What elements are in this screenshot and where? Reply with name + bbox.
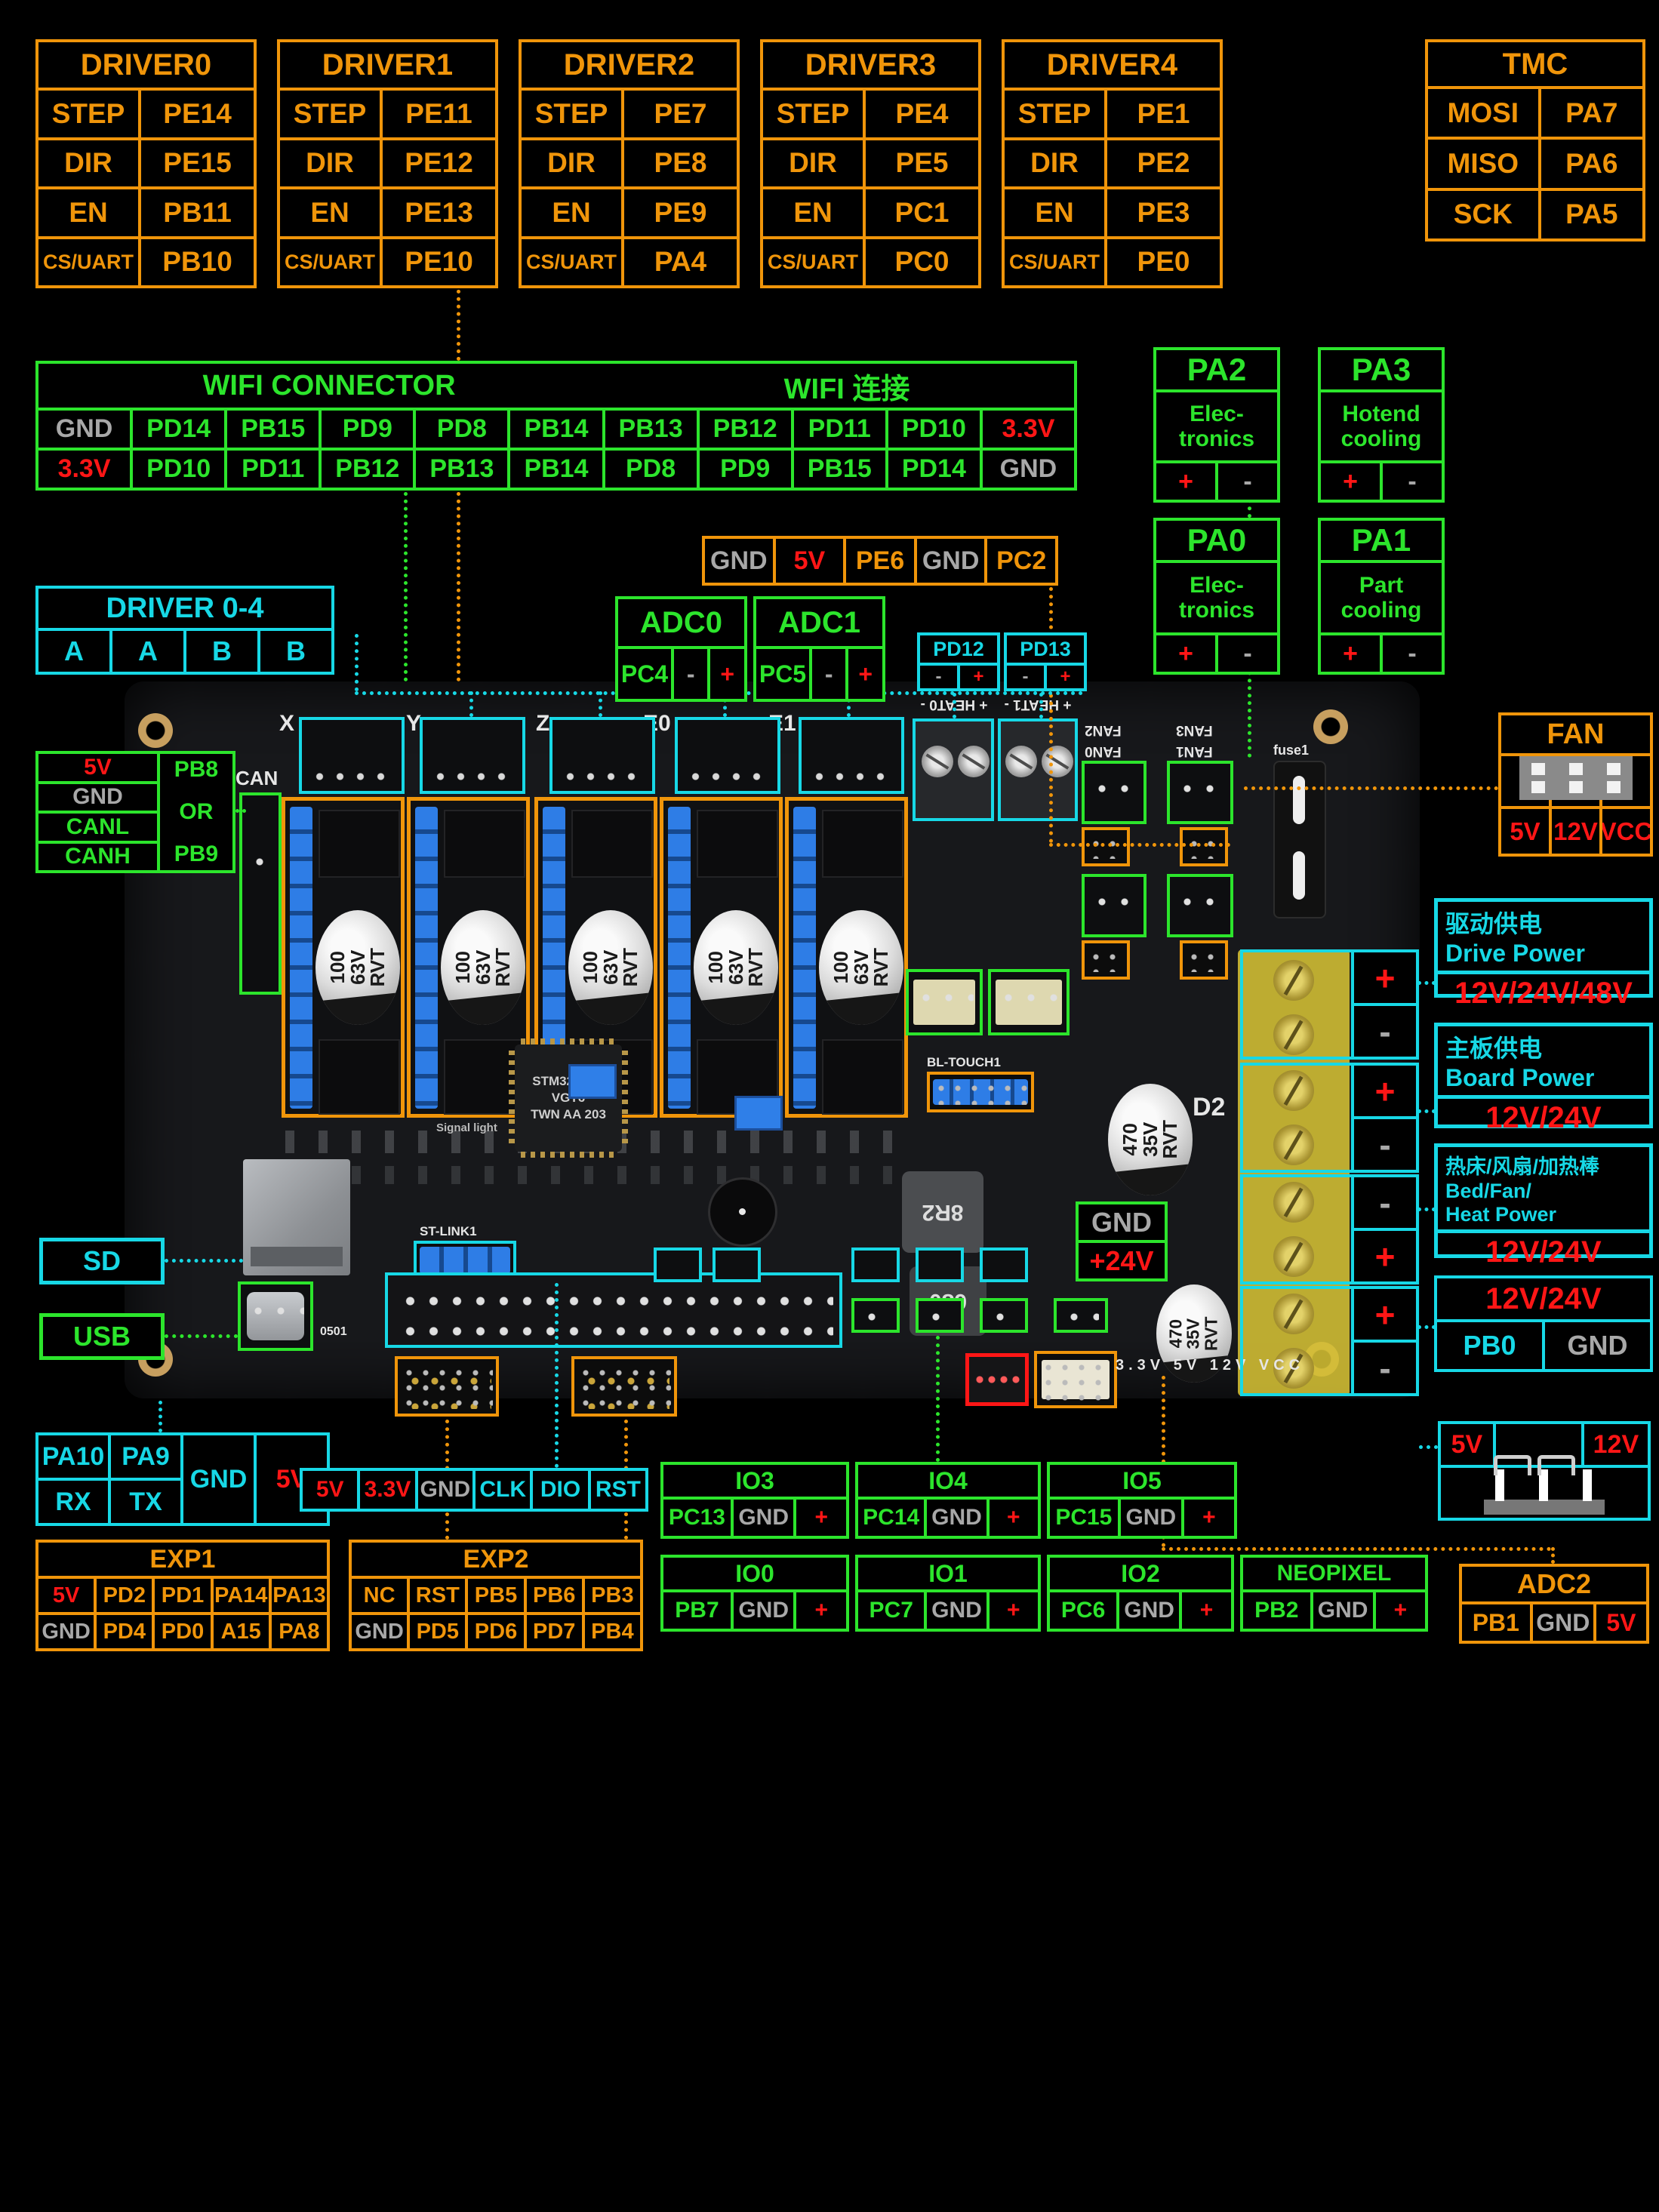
uart-pa10: PA10 [38,1435,108,1478]
wifi-power-connector [965,1353,1029,1406]
driver0-pin: PE15 [141,140,254,187]
uart-tx: TX [111,1481,180,1523]
jumper-header [1082,940,1130,980]
swd-pin: 5V [303,1471,357,1509]
heat1-silk: + HEAT1 - [998,696,1078,712]
pa2-minus: - [1218,463,1277,500]
driver2-table: DRIVER2 STEPPE7DIRPE8ENPE9CS/UARTPA4 [519,39,740,288]
driver3-pin: CS/UART [763,239,863,286]
io3-pin: + [796,1500,846,1536]
adc0-pin: - [674,649,708,699]
driver0-pin: PB11 [141,189,254,236]
adc-jst-connector [988,969,1070,1035]
wifi-pin: PD10 [888,411,980,448]
driver2-pin: PE8 [624,140,737,187]
exp1-pin: PD4 [97,1615,152,1648]
pd12-plus: + [960,666,997,688]
io2-title: IO2 [1050,1558,1231,1589]
adc1-pin: - [812,649,846,699]
exp1-pin: A15 [214,1615,269,1648]
capacitor: 10063VRVT [694,910,778,1025]
wifi-title: WIFI CONNECTOR WIFI 连接 [38,364,1074,408]
driver3-pin: DIR [763,140,863,187]
driver1-pin: PE13 [383,189,495,236]
drive-power-voltage: 12V/24V/48V [1438,971,1649,1013]
uart-pa9: PA9 [111,1435,180,1478]
driver1-pin: EN [280,189,380,236]
pa3-title: PA3 [1321,350,1442,389]
driver4-table: DRIVER4 STEPPE1DIRPE2ENPE3CS/UARTPE0 [1002,39,1223,288]
fan3-silk: FAN3 [1176,721,1213,738]
exp1-title: EXP1 [38,1543,327,1576]
driver2-title: DRIVER2 [522,42,737,88]
driver1-pin: PE10 [383,239,495,286]
terminal-plus: + [1351,949,1419,1006]
fan-voltage-pin: 5V [1501,809,1549,854]
fan-connector [1167,761,1233,824]
board-power-box: 主板供电 Board Power 12V/24V [1434,1023,1653,1128]
buzzer [708,1177,777,1247]
driver3-pin: STEP [763,91,863,137]
d2-silk: D2 [1193,1093,1225,1122]
motor-e0-connector [675,717,780,794]
io0-title: IO0 [663,1558,846,1589]
fuse-holder [1273,761,1326,918]
swd-row: 5V3.3VGNDCLKDIORST [300,1468,648,1512]
exp2-pin: GND [352,1615,407,1648]
heat-power-box: 热床/风扇/加热棒 Bed/Fan/ Heat Power 12V/24V [1434,1143,1653,1258]
wifi-pin: GND [983,451,1074,488]
fan1-silk: FAN1 [1176,743,1213,759]
swd-pin: DIO [533,1471,587,1509]
fan-title: FAN [1501,715,1650,753]
exp1-pin: PA14 [214,1579,269,1612]
adc2-title: ADC2 [1462,1567,1646,1601]
board-power-en: Board Power [1445,1064,1642,1092]
can-connector [239,792,282,995]
io4-pin: PC14 [858,1500,924,1536]
coil-pin: A [112,631,183,672]
pa3-desc: Hotendcooling [1321,392,1442,460]
pd12-title: PD12 [920,635,997,663]
motor-z-connector [549,717,655,794]
wifi-title-en: WIFI CONNECTOR [203,370,456,402]
io5-table: IO5 PC15GND+ [1047,1462,1237,1539]
coil-pin: A [38,631,109,672]
io0-pin: + [796,1592,846,1629]
probe-pin: PE6 [846,539,914,583]
terminal-plus: + [1351,1228,1419,1284]
driver3-pin: PE4 [866,91,978,137]
adc1-title: ADC1 [756,599,882,646]
driver4-pin: PE0 [1107,239,1220,286]
jumper-block [734,1096,783,1131]
io-pin-header [713,1248,761,1282]
terminal-plus: + [1351,1286,1419,1343]
io1-title: IO1 [858,1558,1038,1589]
uart-gnd: GND [183,1435,254,1523]
driver0-pin: PB10 [141,239,254,286]
can-pin: CANL [38,814,157,841]
wifi-pin: PB15 [227,411,319,448]
driver2-pin: PE7 [624,91,737,137]
exp1-pin: PA13 [272,1579,327,1612]
io4-title: IO4 [858,1465,1038,1497]
pa2-plus: + [1156,463,1215,500]
can-table: 5VGNDCANLCANH PB8 OR PB9 [35,751,235,873]
pa1-desc: Partcooling [1321,563,1442,632]
pd13-minus: - [1007,666,1044,688]
driver0-pin: EN [38,189,138,236]
tmc-table: TMC MOSIPA7MISOPA6SCKPA5 [1425,39,1645,242]
exp1-pin: PD0 [155,1615,210,1648]
driver4-pin: PE1 [1107,91,1220,137]
exp2-pin: PB4 [585,1615,640,1648]
driver3-pin: PC1 [866,189,978,236]
pa0-box: PA0 Elec-tronics + - [1153,518,1280,675]
driver04-title: DRIVER 0-4 [38,589,331,628]
gpio-header [385,1272,842,1348]
fan-connector [1082,761,1147,824]
board-power-voltage: 12V/24V [1438,1095,1649,1137]
wifi-pin: GND [38,411,130,448]
drive-power-cn: 驱动供电 [1445,905,1642,940]
driver2-pin: EN [522,189,621,236]
pa1-plus: + [1321,635,1380,672]
probe-pin: 5V [776,539,844,583]
io4-pin: + [990,1500,1038,1536]
can-alt-pins: PB8 OR PB9 [160,754,232,870]
inductor: 8R2 [902,1171,983,1253]
io2-pin: GND [1119,1592,1179,1629]
swd-pin: RST [591,1471,645,1509]
wifi-pin: PD11 [227,451,319,488]
pa0-title: PA0 [1156,521,1277,560]
io-pin-header [916,1298,964,1333]
pa2-box: PA2 Elec-tronics + - [1153,347,1280,503]
io-pin-header [980,1298,1028,1333]
pa3-box: PA3 Hotendcooling + - [1318,347,1445,503]
io5-pin: + [1184,1500,1234,1536]
driver4-pin: DIR [1005,140,1104,187]
adc0-title: ADC0 [618,599,744,646]
adc0-table: ADC0 PC4-+ [615,596,747,702]
driver2-pin: STEP [522,91,621,137]
driver1-pin: PE11 [383,91,495,137]
pd12-table: PD12 - + [917,632,1000,691]
capacitor: 10063VRVT [819,910,903,1025]
jumper-block [568,1064,617,1099]
wifi-pin: PD11 [794,411,885,448]
bed-output-pb0: PB0 [1437,1322,1542,1369]
exp2-connector [571,1356,677,1417]
driver3-pin: EN [763,189,863,236]
wifi-pin: PB15 [794,451,885,488]
pa3-plus: + [1321,463,1380,500]
driver1-pin: CS/UART [280,239,380,286]
adc1-pin: + [848,649,882,699]
pd13-plus: + [1047,666,1084,688]
jumper-header [1082,827,1130,866]
neopixel-connector [1054,1298,1108,1333]
exp2-table: EXP2 NCRSTPB5PB6PB3GNDPD5PD6PD7PB4 [349,1540,643,1651]
jumper-cap-graphic [1441,1468,1648,1518]
jst-connector [1034,1351,1117,1408]
io0-table: IO0 PB7GND+ [660,1555,849,1632]
driver4-pin: EN [1005,189,1104,236]
tmc-pin: MISO [1428,140,1538,187]
power24-v: +24V [1079,1243,1165,1278]
probe-pin: PC2 [987,539,1055,583]
uart-table: PA10 PA9 GND 5V RX TX [35,1432,330,1526]
driver04-table: DRIVER 0-4 AABB [35,586,334,675]
driver2-pin: PA4 [624,239,737,286]
heat-power-en1: Bed/Fan/ [1445,1180,1642,1203]
heat0-terminal [913,718,994,821]
probe-header-row: GND5VPE6GNDPC2 [702,536,1058,586]
io3-title: IO3 [663,1465,846,1497]
io-pin-header [654,1248,702,1282]
io0-pin: PB7 [663,1592,731,1629]
pd13-title: PD13 [1007,635,1084,663]
capacitor: 10063VRVT [441,910,525,1025]
jumper-header [1180,940,1228,980]
pa0-desc: Elec-tronics [1156,563,1277,632]
driver1-title: DRIVER1 [280,42,495,88]
swd-pin: CLK [476,1471,530,1509]
pa0-plus: + [1156,635,1215,672]
wifi-table: WIFI CONNECTOR WIFI 连接 GNDPD14PB15PD9PD8… [35,361,1077,491]
jumper-12v: 12V [1584,1424,1648,1465]
capacitor: 10063VRVT [568,910,653,1025]
power24-gnd: GND [1079,1204,1165,1240]
exp1-connector [395,1356,499,1417]
pa1-box: PA1 Partcooling + - [1318,518,1445,675]
heat-power-voltage: 12V/24V [1438,1229,1649,1272]
terminal-minus: - [1351,1174,1419,1231]
pa1-minus: - [1383,635,1442,672]
tmc-pin: SCK [1428,191,1538,238]
driver4-pin: PE2 [1107,140,1220,187]
motor-y-connector [420,717,525,794]
swd-pin: GND [418,1471,472,1509]
io1-pin: GND [927,1592,986,1629]
wifi-pin: PB13 [416,451,507,488]
terminal-minus: - [1351,1003,1419,1060]
fan-table: FAN 5V12VVCC [1498,712,1653,857]
motor-x-connector [299,717,405,794]
driver3-pin: PE5 [866,140,978,187]
io4-pin: GND [927,1500,986,1536]
can-pb9: PB9 [174,841,218,867]
tmc-pin: MOSI [1428,89,1538,137]
adc2-pin: PB1 [1462,1604,1530,1641]
pd12-minus: - [920,666,957,688]
fan-jumper-graphic [1498,756,1653,800]
wifi-pin: PD8 [416,411,507,448]
io5-pin: PC15 [1050,1500,1118,1536]
pinout-diagram: { "palette":{"orange":"#f0950a","green":… [0,0,1659,2212]
bed-output-gnd: GND [1545,1322,1650,1369]
fan2-silk: FAN2 [1085,721,1122,738]
adc2-pin: GND [1533,1604,1593,1641]
bed-output-table: 12V/24V PB0 GND [1434,1275,1653,1372]
pa3-minus: - [1383,463,1442,500]
usb-connector [238,1281,313,1351]
wifi-pin: PD14 [133,411,224,448]
probe-pin: GND [705,539,773,583]
io-pin-header [851,1298,900,1333]
terminal-plus: + [1351,1063,1419,1119]
motor-y-label: Y [406,711,421,737]
motor-e1-connector [799,717,904,794]
pa1-title: PA1 [1321,521,1442,560]
io-pin-header [980,1248,1028,1282]
driver3-table: DRIVER3 STEPPE4DIRPE5ENPC1CS/UARTPC0 [760,39,981,288]
exp1-pin: GND [38,1615,94,1648]
fan-connector [1082,874,1147,937]
io1-pin: + [990,1592,1038,1629]
io2-table: IO2 PC6GND+ [1047,1555,1234,1632]
tmc-title: TMC [1428,42,1642,86]
exp1-table: EXP1 5VPD2PD1PA14PA13GNDPD4PD0A15PA8 [35,1540,330,1651]
driver4-title: DRIVER4 [1005,42,1220,88]
wifi-pin: PD14 [888,451,980,488]
driver3-title: DRIVER3 [763,42,978,88]
sd-label-box: SD [39,1238,165,1284]
exp2-pin: PB3 [585,1579,640,1612]
heat-power-cn: 热床/风扇/加热棒 [1445,1150,1642,1180]
jumper-header [1180,827,1228,866]
wifi-title-cn: WIFI 连接 [784,365,910,407]
coil-pin: B [186,631,257,672]
fan0-silk: FAN0 [1085,743,1122,759]
pa2-title: PA2 [1156,350,1277,389]
adc-jst-connector [906,969,983,1035]
wifi-pin: 3.3V [38,451,130,488]
adc0-pin: PC4 [618,649,671,699]
wifi-pin: PD8 [605,451,697,488]
driver4-pin: PE3 [1107,189,1220,236]
wifi-pin: PD9 [700,451,791,488]
exp2-pin: RST [410,1579,465,1612]
wifi-pin: PD10 [133,451,224,488]
swd-pin: 3.3V [360,1471,414,1509]
exp2-pin: PB6 [527,1579,582,1612]
neopixel-pin: PB2 [1243,1592,1310,1629]
wifi-pin: 3.3V [983,411,1074,448]
heat1-terminal [998,718,1078,821]
mount-hole [1313,709,1348,744]
exp2-pin: NC [352,1579,407,1612]
wifi-pin: PD9 [322,411,413,448]
driver0-pin: CS/UART [38,239,138,286]
coil-pin: B [260,631,331,672]
driver0-table: DRIVER0 STEPPE14DIRPE15ENPB11CS/UARTPB10 [35,39,257,288]
wifi-pin: PB14 [510,451,602,488]
board-power-cn: 主板供电 [1445,1029,1642,1064]
wifi-pin: PB14 [510,411,602,448]
terminal-minus: - [1351,1116,1419,1173]
exp1-pin: PD2 [97,1579,152,1612]
io-pin-header [916,1248,964,1282]
exp2-pin: PD5 [410,1615,465,1648]
uart-rx: RX [38,1481,108,1523]
stlink-silk: ST-LINK1 [420,1224,477,1239]
driver-socket: 10063VRVT [282,797,405,1118]
usb-label-box: USB [39,1313,165,1360]
driver0-title: DRIVER0 [38,42,254,88]
tmc-pin: PA6 [1541,140,1642,187]
adc2-table: ADC2 PB1GND5V [1459,1564,1649,1644]
can-pin: 5V [38,754,157,781]
neopixel-pin: GND [1313,1592,1373,1629]
exp1-pin: PD1 [155,1579,210,1612]
motor-z-label: Z [536,711,549,737]
io3-pin: PC13 [663,1500,731,1536]
heat-power-en2: Heat Power [1445,1203,1642,1226]
signal-light-silk: Signal light [436,1121,497,1134]
exp1-pin: PA8 [272,1615,327,1648]
driver2-pin: DIR [522,140,621,187]
exp1-pin: 5V [38,1579,94,1612]
voltage-jumper-table: 5V 12V [1438,1421,1651,1521]
driver1-table: DRIVER1 STEPPE11DIRPE12ENPE13CS/UARTPE10 [277,39,498,288]
io0-pin: GND [734,1592,794,1629]
drive-power-en: Drive Power [1445,940,1642,968]
exp2-title: EXP2 [352,1543,640,1576]
driver-socket: 10063VRVT [660,797,783,1118]
io3-table: IO3 PC13GND+ [660,1462,849,1539]
fuse-silk: fuse1 [1273,743,1309,758]
capacitor: 10063VRVT [315,910,400,1025]
wifi-pin: PB12 [322,451,413,488]
driver1-pin: PE12 [383,140,495,187]
terminal-minus: - [1351,1340,1419,1396]
io1-table: IO1 PC7GND+ [855,1555,1041,1632]
driver1-pin: DIR [280,140,380,187]
driver0-pin: DIR [38,140,138,187]
wifi-pin: PB12 [700,411,791,448]
wifi-pin: PB13 [605,411,697,448]
driver2-pin: PE9 [624,189,737,236]
driver3-pin: PC0 [866,239,978,286]
jumper-5v: 5V [1441,1424,1493,1465]
neopixel-table: NEOPIXEL PB2GND+ [1240,1555,1428,1632]
io-pin-header [851,1248,900,1282]
fan-voltage-pin: 12V [1552,809,1599,854]
can-silk-label: CAN [235,767,278,790]
driver-socket: 10063VRVT [785,797,908,1118]
adc0-pin: + [710,649,744,699]
exp2-pin: PD7 [527,1615,582,1648]
io5-pin: GND [1121,1500,1181,1536]
capacitor-470: 47035VRVT [1108,1084,1193,1195]
io3-pin: GND [734,1500,794,1536]
neopixel-pin: + [1376,1592,1425,1629]
io1-pin: PC7 [858,1592,924,1629]
driver4-pin: STEP [1005,91,1104,137]
exp2-pin: PB5 [468,1579,523,1612]
fan-connector [1167,874,1233,937]
driver0-pin: PE14 [141,91,254,137]
driver1-pin: STEP [280,91,380,137]
io2-pin: + [1182,1592,1231,1629]
bed-output-voltage: 12V/24V [1437,1278,1650,1319]
bltouch-connector [927,1072,1034,1112]
sd-slot [243,1159,350,1275]
tmc-pin: PA7 [1541,89,1642,137]
